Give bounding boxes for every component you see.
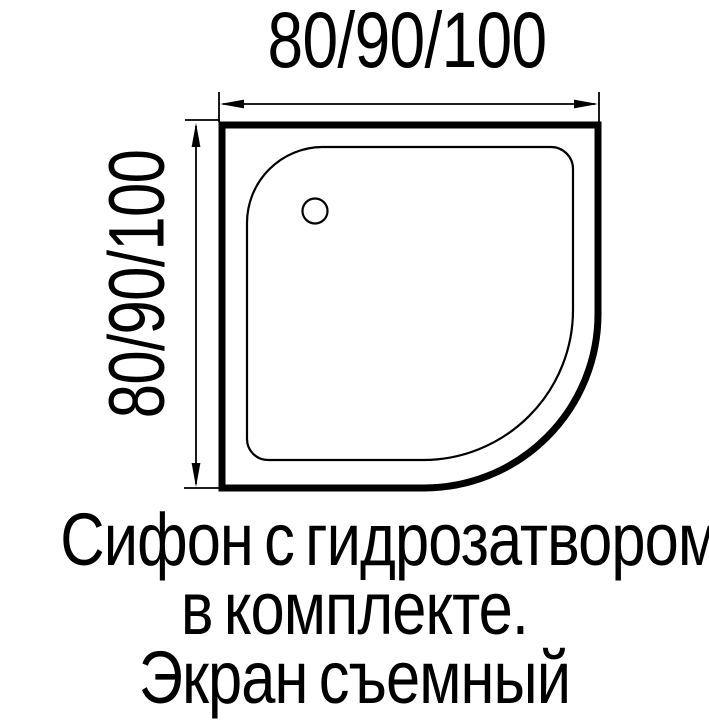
arrow-left-icon [220,100,244,109]
diagram-canvas: 80/90/100 80/90/100 Сифон с гидрозатворо… [0,0,709,722]
caption-line-3: Экран съемный [60,643,648,712]
caption-line-2: в комплекте. [60,574,648,643]
arrow-down-icon [192,463,201,487]
caption-line-1: Сифон с гидрозатвором [60,505,648,574]
basin-outline [247,147,573,460]
height-dimension-label: 80/90/100 [97,150,176,419]
arrow-up-icon [192,123,201,147]
height-dimension [184,120,221,488]
tray-outline [222,125,598,488]
arrow-right-icon [574,100,598,109]
caption: Сифон с гидрозатвором в комплекте. Экран… [0,505,709,712]
drain-hole [303,199,328,224]
width-dimension-label: 80/90/100 [255,0,560,79]
